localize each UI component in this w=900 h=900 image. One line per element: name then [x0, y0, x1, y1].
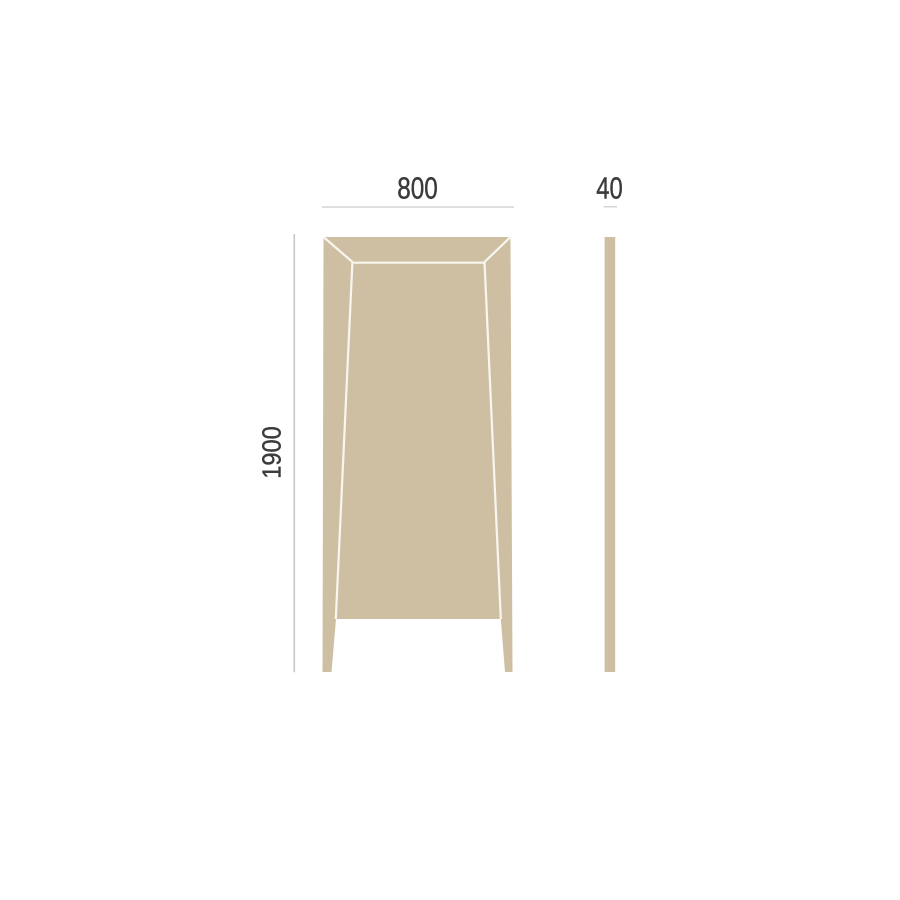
svg-text:1900: 1900: [257, 426, 287, 479]
svg-text:40: 40: [596, 170, 623, 205]
svg-text:800: 800: [397, 171, 438, 206]
